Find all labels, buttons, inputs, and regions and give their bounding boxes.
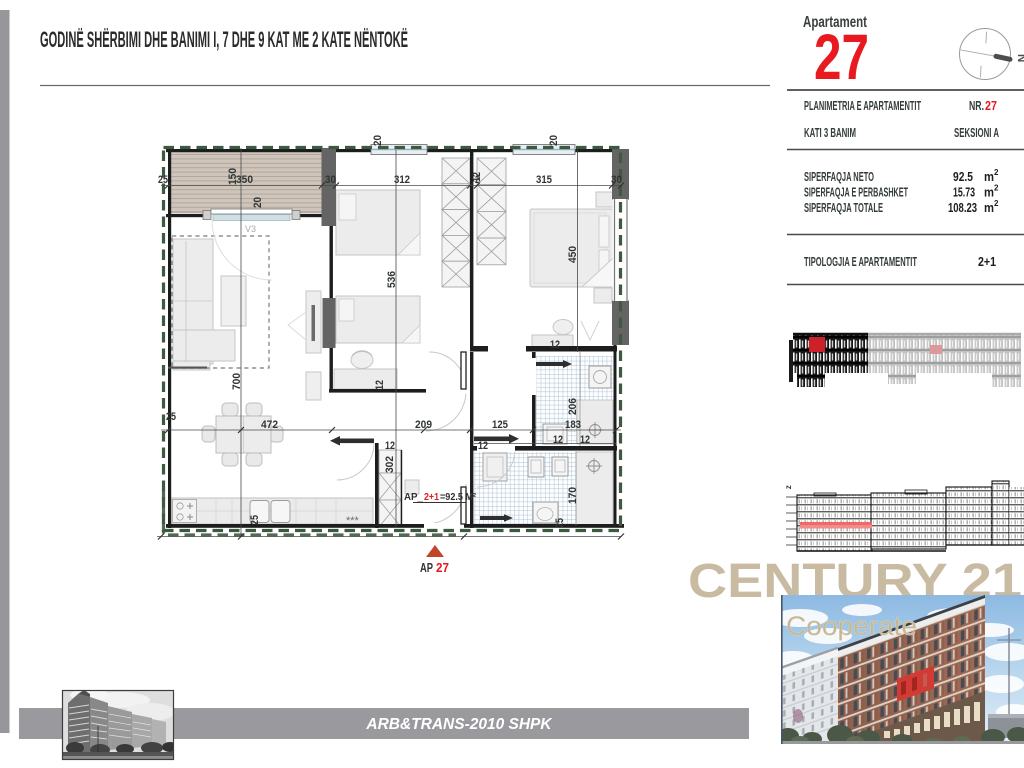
svg-text:2+1: 2+1 [978, 254, 996, 269]
svg-text:V3: V3 [245, 224, 256, 234]
svg-text:2: 2 [475, 174, 479, 186]
svg-text:ARB&TRANS-2010 SHPK: ARB&TRANS-2010 SHPK [365, 716, 553, 733]
svg-text:108.23: 108.23 [948, 201, 977, 215]
svg-text:AP: AP [420, 561, 433, 575]
svg-text:2: 2 [994, 168, 999, 177]
svg-text:N: N [1015, 54, 1024, 62]
svg-text:25: 25 [249, 515, 261, 525]
svg-text:TIPOLOGJIA E APARTAMENTIT: TIPOLOGJIA E APARTAMENTIT [804, 255, 917, 269]
svg-text:AP_: AP_ [404, 491, 423, 503]
svg-text:27: 27 [985, 99, 997, 113]
svg-text:27: 27 [436, 561, 449, 575]
svg-text:25: 25 [166, 411, 176, 423]
svg-text:GODINË SHËRBIMI DHE BANIMI I,: GODINË SHËRBIMI DHE BANIMI I, 7 DHE 9 KA… [40, 27, 408, 52]
svg-text:170: 170 [567, 487, 579, 504]
svg-text:2+1: 2+1 [424, 491, 439, 503]
svg-text:Z: Z [787, 485, 793, 489]
svg-text:20: 20 [372, 135, 384, 146]
svg-text:12: 12 [580, 434, 590, 446]
svg-text:SIPERFAQJA E PERBASHKET: SIPERFAQJA E PERBASHKET [804, 186, 908, 200]
svg-text:SIPERFAQJA TOTALE: SIPERFAQJA TOTALE [804, 201, 883, 215]
svg-text:12: 12 [553, 434, 563, 446]
svg-text:472: 472 [261, 419, 278, 431]
svg-text:206: 206 [567, 398, 579, 415]
svg-text:12: 12 [385, 440, 395, 452]
svg-text:m: m [984, 186, 994, 200]
svg-text:m: m [984, 201, 994, 215]
svg-text:12: 12 [374, 380, 386, 390]
svg-text:2: 2 [994, 184, 999, 193]
svg-text:SIPERFAQJA NETO: SIPERFAQJA NETO [804, 170, 874, 184]
svg-text:25: 25 [158, 174, 168, 186]
svg-text:30: 30 [325, 174, 336, 186]
svg-text:700: 700 [231, 373, 243, 390]
svg-text:12: 12 [478, 440, 488, 452]
svg-text:20: 20 [252, 197, 264, 208]
svg-text:27: 27 [814, 21, 869, 93]
svg-text:302: 302 [384, 456, 396, 473]
svg-text:536: 536 [386, 271, 398, 288]
svg-text:20: 20 [548, 135, 560, 146]
svg-text:312: 312 [394, 174, 410, 186]
svg-text:30: 30 [611, 174, 622, 186]
svg-text:150: 150 [227, 168, 239, 185]
svg-text:2: 2 [994, 199, 999, 208]
svg-text:12: 12 [550, 339, 560, 351]
svg-text:209: 209 [415, 419, 432, 431]
svg-text:15.73: 15.73 [953, 186, 975, 200]
svg-text:=92.5 M²: =92.5 M² [440, 491, 476, 503]
svg-text:KATI 3 BANIM: KATI 3 BANIM [804, 126, 856, 140]
svg-text:92.5: 92.5 [953, 170, 973, 184]
svg-text:Cooperate: Cooperate [786, 611, 917, 641]
svg-text:NR.: NR. [969, 99, 984, 113]
svg-text:450: 450 [567, 246, 579, 263]
svg-text:25: 25 [554, 518, 566, 528]
svg-text:125: 125 [492, 419, 508, 431]
svg-text:PLANIMETRIA E APARTAMENTIT: PLANIMETRIA E APARTAMENTIT [804, 99, 921, 113]
svg-text:m: m [984, 170, 994, 184]
svg-text:183: 183 [565, 419, 581, 431]
svg-text:315: 315 [536, 174, 552, 186]
svg-text:SEKSIONI A: SEKSIONI A [954, 126, 999, 140]
